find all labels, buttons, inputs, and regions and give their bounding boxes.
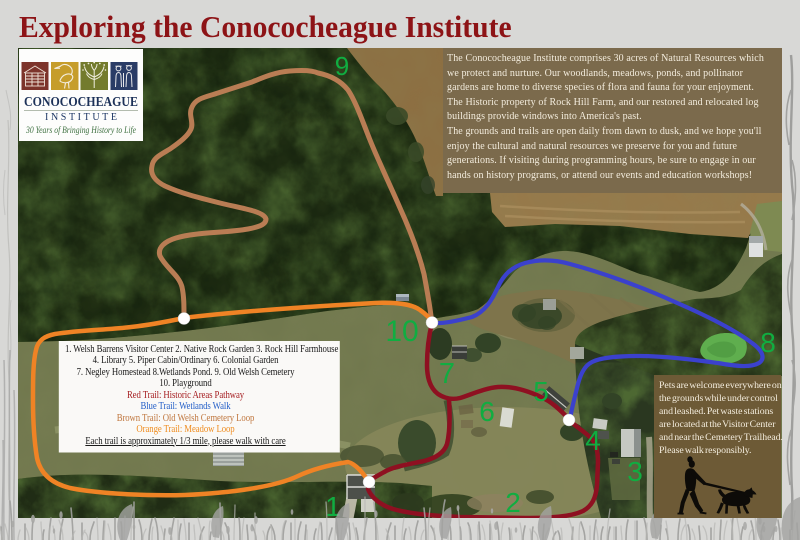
svg-text:4: 4 [585, 425, 601, 456]
svg-text:30 Years of Bringing History t: 30 Years of Bringing History to Life [25, 125, 136, 136]
svg-text:3: 3 [627, 456, 643, 487]
svg-text:7: 7 [439, 358, 455, 390]
svg-text:8: 8 [760, 327, 776, 358]
svg-text:10: 10 [385, 315, 418, 348]
svg-text:5: 5 [533, 376, 549, 407]
svg-text:INSTITUTE: INSTITUTE [45, 112, 117, 123]
svg-text:9: 9 [335, 51, 349, 81]
svg-text:2: 2 [505, 487, 521, 518]
svg-text:6: 6 [479, 396, 495, 427]
svg-text:CONOCOCHEAGUE: CONOCOCHEAGUE [24, 94, 138, 109]
